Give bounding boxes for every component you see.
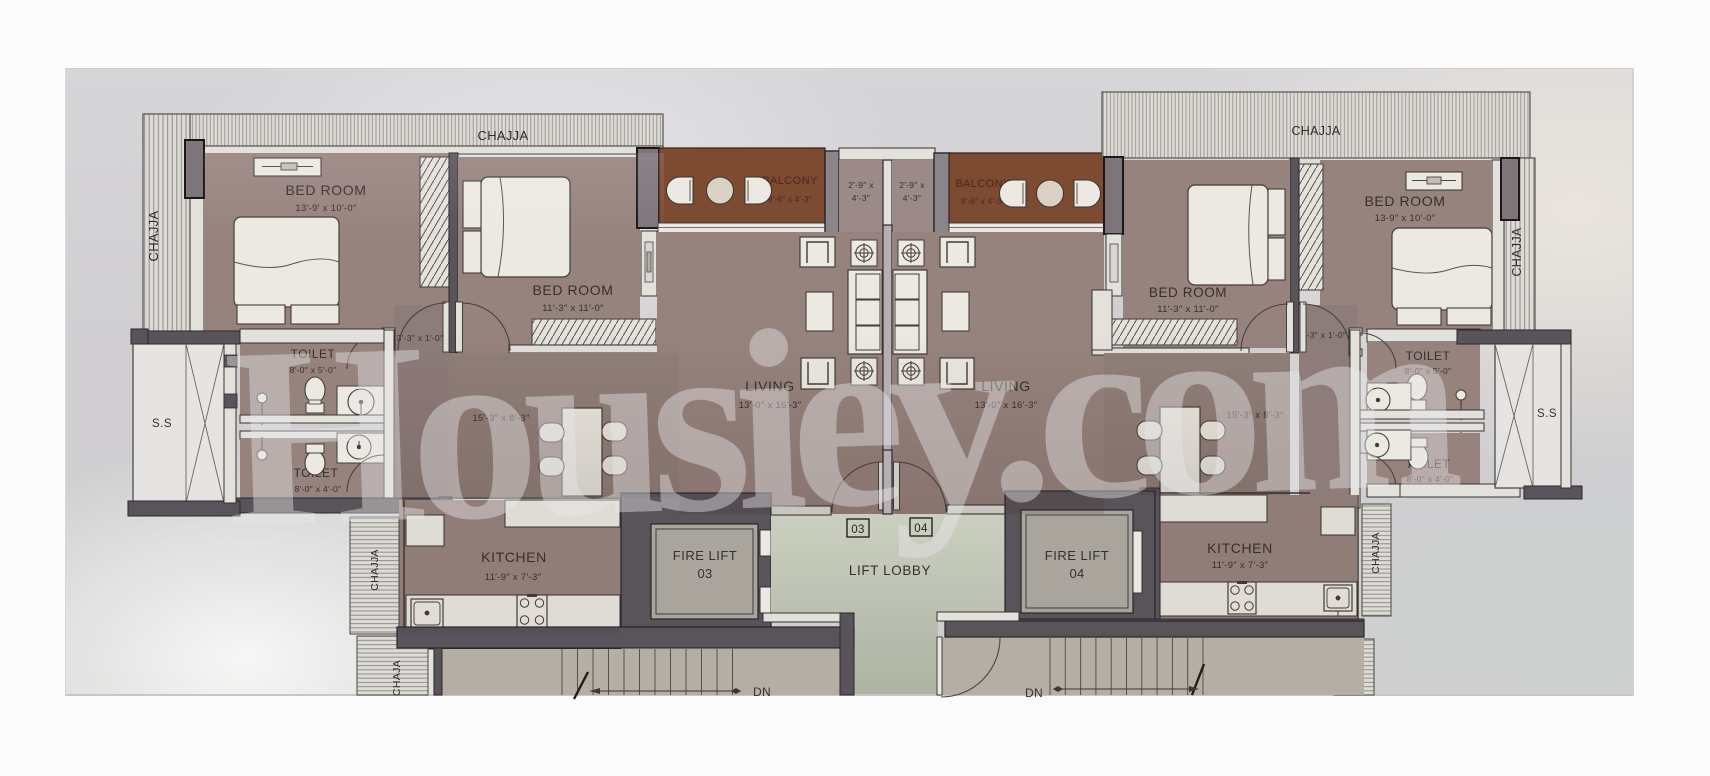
svg-text:Housiey.com: Housiey.com [220,254,1465,581]
